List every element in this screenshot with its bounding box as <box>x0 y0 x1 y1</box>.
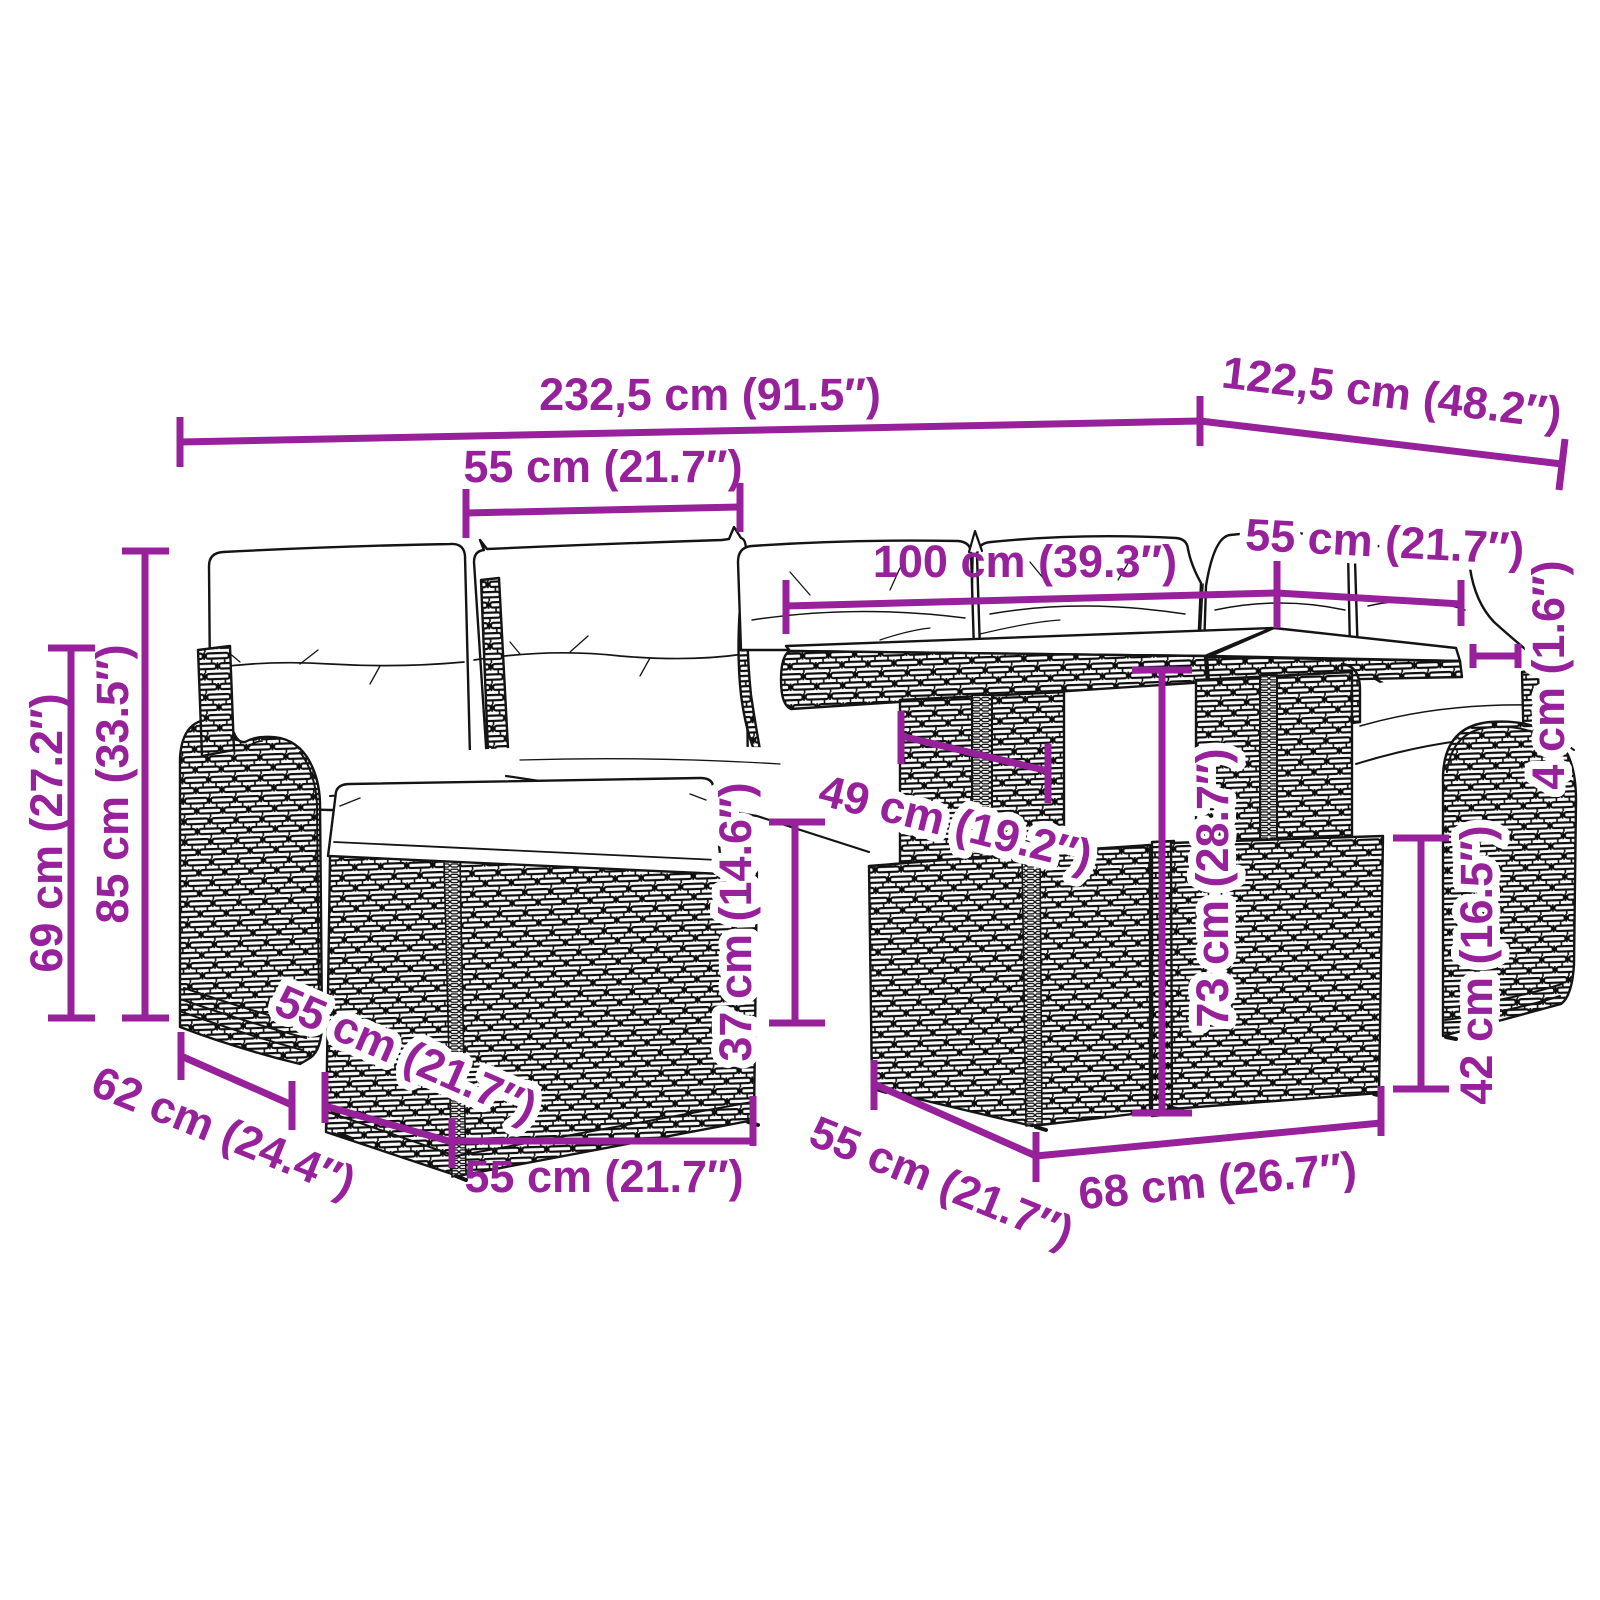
svg-text:42 cm (16.5″): 42 cm (16.5″) <box>1451 825 1502 1104</box>
svg-text:55 cm (21.7″): 55 cm (21.7″) <box>464 1151 743 1202</box>
svg-text:73 cm (28.7″): 73 cm (28.7″) <box>1187 748 1238 1027</box>
svg-text:4 cm (1.6″): 4 cm (1.6″) <box>1523 560 1574 789</box>
svg-text:69 cm (27.2″): 69 cm (27.2″) <box>21 693 72 972</box>
svg-text:55 cm (21.7″): 55 cm (21.7″) <box>463 441 742 492</box>
svg-text:100 cm (39.3″): 100 cm (39.3″) <box>873 536 1177 587</box>
svg-text:85 cm (33.5″): 85 cm (33.5″) <box>87 644 138 923</box>
svg-text:232,5 cm (91.5″): 232,5 cm (91.5″) <box>539 369 881 420</box>
svg-text:37 cm (14.6″): 37 cm (14.6″) <box>710 782 761 1061</box>
